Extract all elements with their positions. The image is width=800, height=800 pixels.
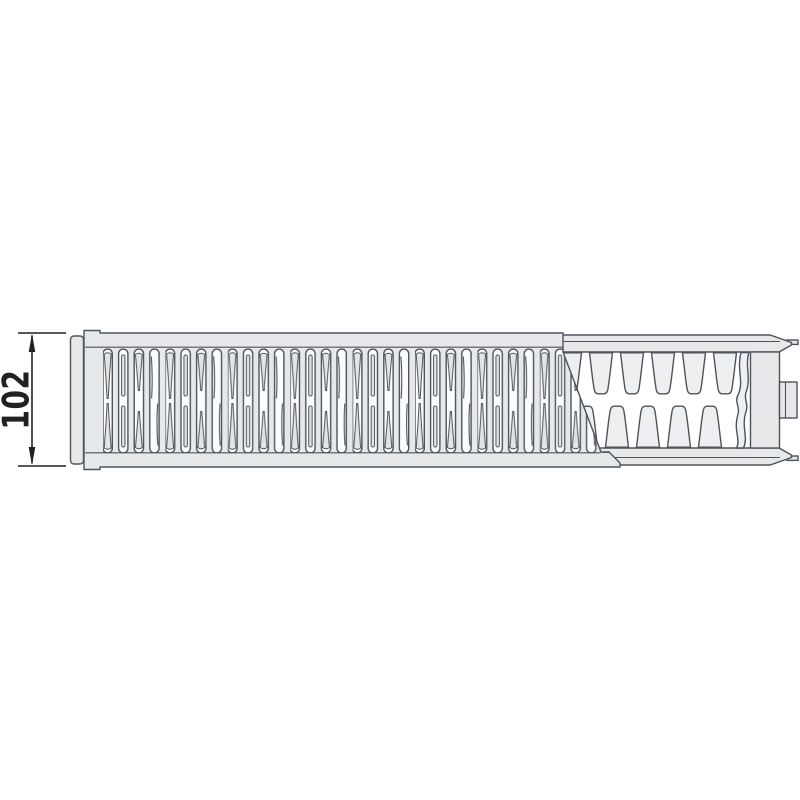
rear-panel-bottom-edge [598,448,792,465]
grille-slots [103,349,612,454]
fin-tooth [606,406,629,447]
dimension-arrow-up-icon [29,334,36,352]
connection-stub [780,382,798,418]
front-panel-grille [84,331,620,470]
right-end-assembly [751,352,798,448]
fin-tooth [590,353,613,394]
end-plate [751,352,780,448]
page: 102 [0,0,800,800]
left-end-cap [71,336,84,464]
dimension-label: 102 [0,370,37,430]
dimension-arrow-down-icon [29,447,36,465]
fin-tooth [621,353,644,394]
fin-break-edge [736,353,749,449]
fin-tooth [668,406,691,447]
fin-tooth [652,353,675,394]
dimension-indicator: 102 [0,333,66,466]
fin-tooth [714,353,737,394]
radiator-top-view-drawing: 102 [0,0,800,800]
fin-tooth [683,353,706,394]
fin-tooth [637,406,660,447]
fin-tooth [699,406,722,447]
rear-panel-top-edge [560,335,792,352]
